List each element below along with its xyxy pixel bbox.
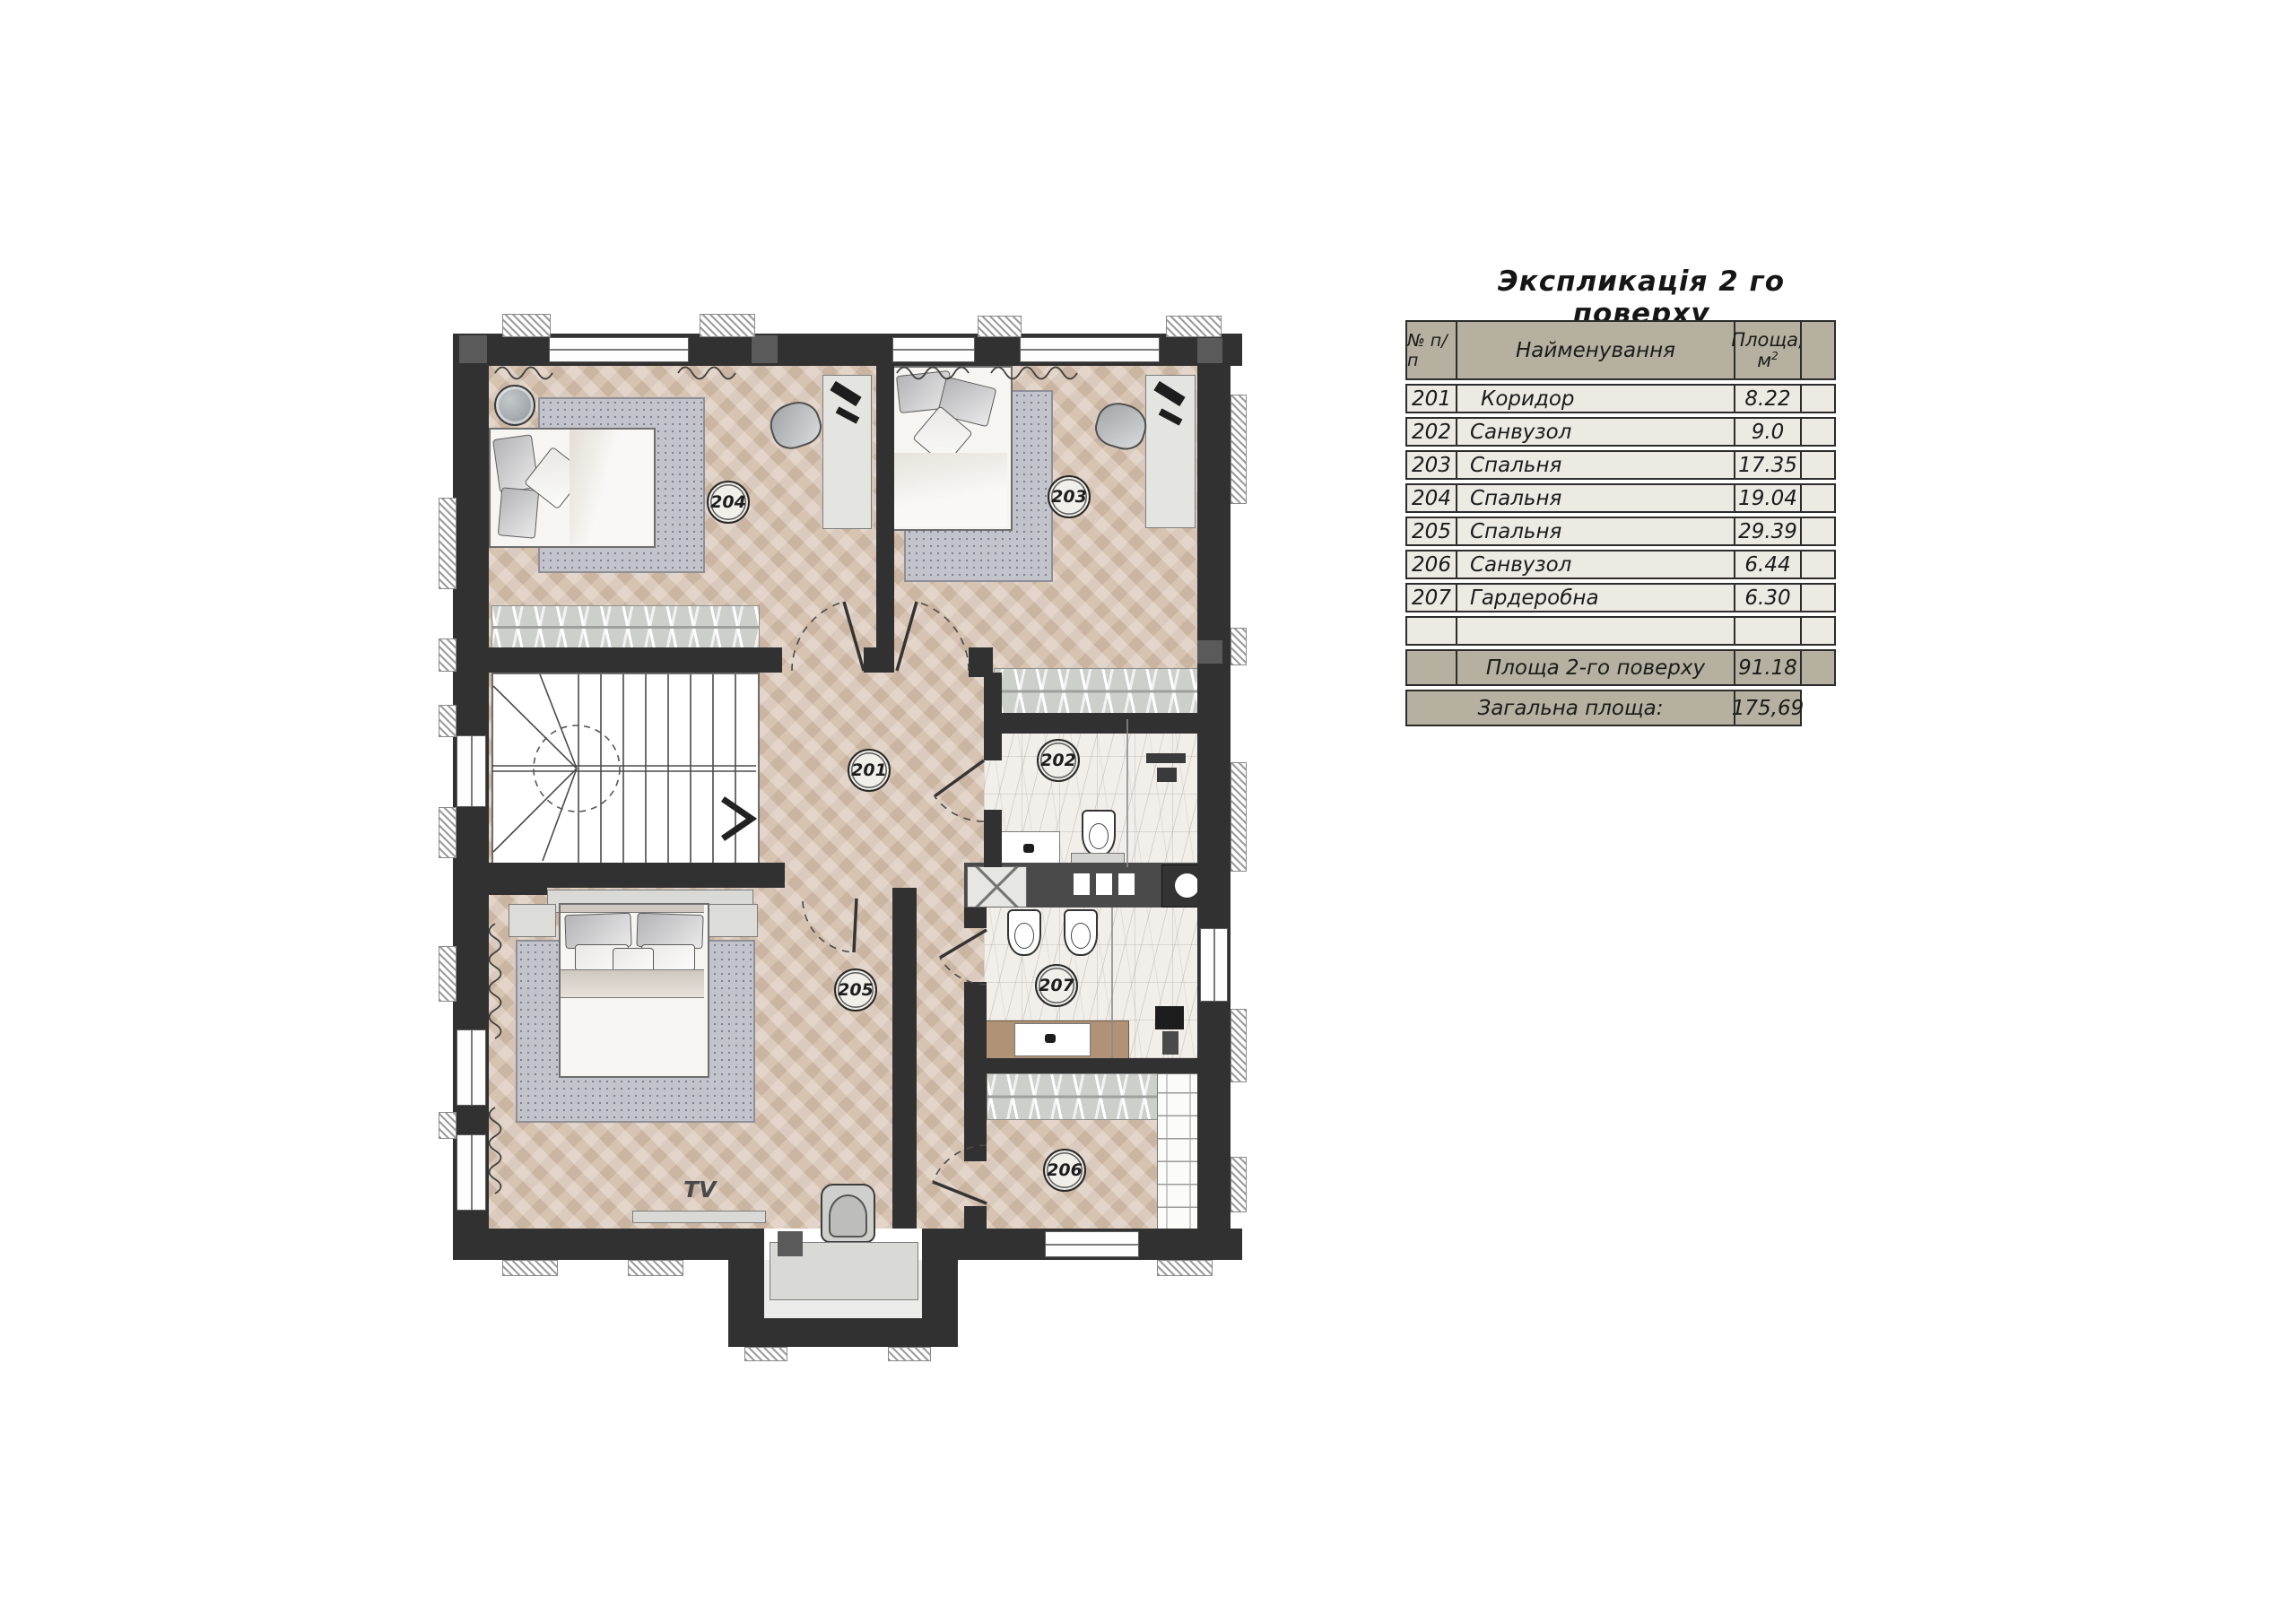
row-area: 8.22 <box>1734 384 1802 413</box>
table-row: 206 Санвузол 6.44 <box>1405 550 1841 579</box>
page: 201 202 203 204 205 206 207 TV Экспликац… <box>0 0 2296 1624</box>
header-num: № п/п <box>1405 320 1457 380</box>
row-extra <box>1800 550 1836 579</box>
row-extra <box>1800 384 1836 413</box>
row-name: Санвузол <box>1456 550 1735 579</box>
table-header-row: № п/п Найменування Площа, м2 <box>1405 320 1841 380</box>
row-name: Спальня <box>1456 450 1735 480</box>
row-name: Спальня <box>1456 517 1735 546</box>
row-area <box>1734 616 1802 646</box>
header-area-line1: Площа, <box>1731 330 1804 350</box>
row-area: 6.30 <box>1734 583 1802 612</box>
tv-label: TV <box>683 1177 716 1203</box>
floor-total-extra <box>1800 649 1836 686</box>
header-area: Площа, м2 <box>1734 320 1802 380</box>
table-row: 201 Коридор 8.22 <box>1405 384 1841 413</box>
row-area: 6.44 <box>1734 550 1802 579</box>
room-number: 202 <box>1040 751 1076 770</box>
row-num: 204 <box>1405 483 1457 513</box>
decor-squiggles <box>490 368 1078 1194</box>
row-extra <box>1800 450 1836 480</box>
header-area-line2: м2 <box>1757 351 1778 370</box>
plan-annotations <box>0 0 2296 1624</box>
room-number: 204 <box>710 492 746 512</box>
room-number: 203 <box>1051 487 1087 507</box>
row-name: Санвузол <box>1456 417 1735 447</box>
table-empty-row <box>1405 616 1841 646</box>
row-name: Гардеробна <box>1456 583 1735 612</box>
row-extra <box>1800 616 1836 646</box>
stair-direction-arrow <box>723 799 752 838</box>
room-number: 205 <box>838 980 874 1000</box>
room-number: 206 <box>1047 1160 1083 1180</box>
room-label-202: 202 <box>1037 739 1080 782</box>
room-label-201: 201 <box>848 749 891 792</box>
row-extra <box>1800 483 1836 513</box>
table-row: 202 Санвузол 9.0 <box>1405 417 1841 447</box>
table-row: 203 Спальня 17.35 <box>1405 450 1841 480</box>
row-extra <box>1800 583 1836 612</box>
room-label-203: 203 <box>1048 475 1091 518</box>
row-num: 201 <box>1405 384 1457 413</box>
table-row: 205 Спальня 29.39 <box>1405 517 1841 546</box>
row-extra <box>1800 517 1836 546</box>
floor-total-row: Площа 2-го поверху 91.18 <box>1405 649 1841 686</box>
row-num: 203 <box>1405 450 1457 480</box>
row-num: 202 <box>1405 417 1457 447</box>
row-area: 9.0 <box>1734 417 1802 447</box>
room-label-204: 204 <box>707 481 750 524</box>
grand-total-row: Загальна площа: 175,69 <box>1405 690 1841 726</box>
floor-total-numcell <box>1405 649 1457 686</box>
header-extra <box>1800 320 1836 380</box>
header-name: Найменування <box>1456 320 1735 380</box>
room-label-206: 206 <box>1043 1149 1086 1192</box>
row-name: Коридор <box>1456 384 1735 413</box>
row-name: Спальня <box>1456 483 1735 513</box>
floor-total-value: 91.18 <box>1734 649 1802 686</box>
stair-treads <box>491 674 756 863</box>
row-num: 207 <box>1405 583 1457 612</box>
row-num: 205 <box>1405 517 1457 546</box>
explication-table: № п/п Найменування Площа, м2 201 Коридор… <box>1405 320 1841 726</box>
row-num <box>1405 616 1457 646</box>
floor-total-label: Площа 2-го поверху <box>1456 649 1735 686</box>
table-row: 207 Гардеробна 6.30 <box>1405 583 1841 612</box>
room-number: 201 <box>851 760 887 780</box>
table-row: 204 Спальня 19.04 <box>1405 483 1841 513</box>
door-swings <box>792 602 987 1182</box>
room-number: 207 <box>1039 976 1074 995</box>
grand-total-value: 175,69 <box>1734 690 1802 726</box>
row-area: 19.04 <box>1734 483 1802 513</box>
room-label-205: 205 <box>834 968 877 1012</box>
row-extra <box>1800 417 1836 447</box>
row-name <box>1456 616 1735 646</box>
row-area: 17.35 <box>1734 450 1802 480</box>
glass-partitions <box>1112 719 1127 1058</box>
door-leaves <box>844 602 987 1203</box>
row-area: 29.39 <box>1734 517 1802 546</box>
room-label-207: 207 <box>1035 964 1078 1007</box>
grand-total-label: Загальна площа: <box>1405 690 1735 726</box>
row-num: 206 <box>1405 550 1457 579</box>
